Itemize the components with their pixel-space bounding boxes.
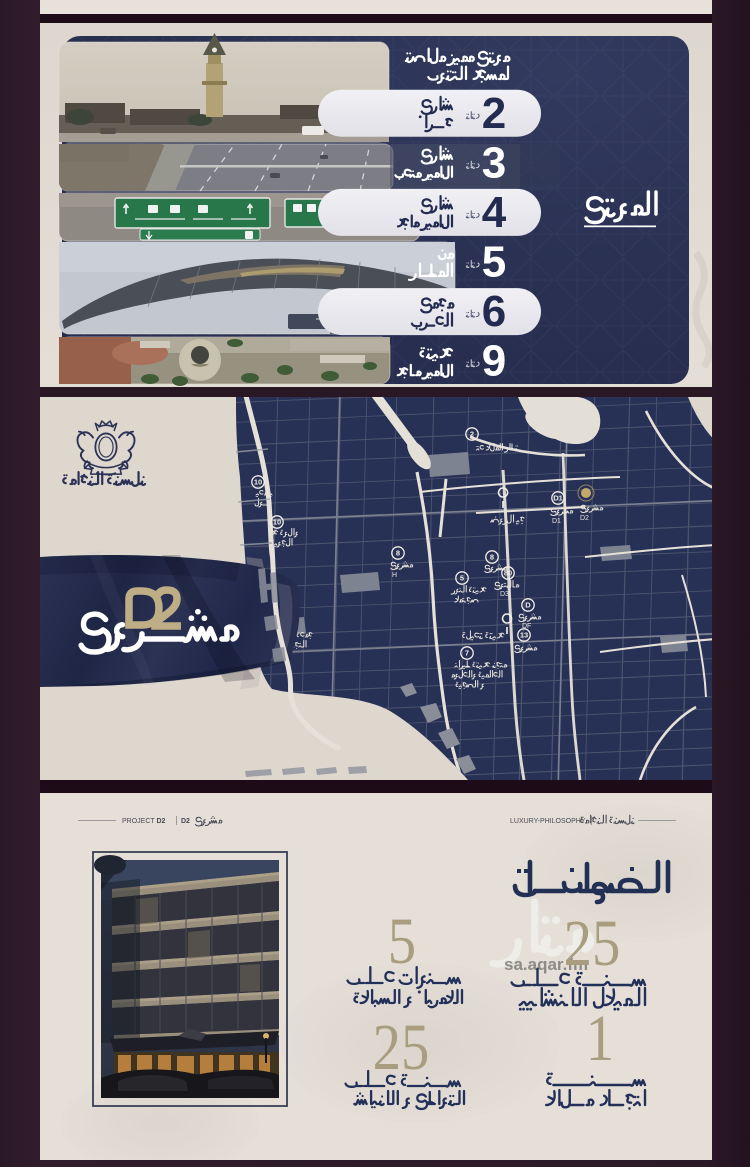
svg-text:4: 4 — [482, 188, 507, 237]
svg-text:6: 6 — [482, 287, 506, 336]
svg-text:13: 13 — [520, 631, 528, 640]
svg-text:5: 5 — [482, 238, 506, 287]
svg-text:5: 5 — [388, 905, 416, 978]
svg-text:LUXURY-PHILOSOPHY: LUXURY-PHILOSOPHY — [510, 818, 586, 825]
svg-text:8: 8 — [490, 553, 494, 562]
svg-text:10: 10 — [254, 478, 262, 487]
svg-text:D2: D2 — [181, 818, 190, 825]
svg-text:80: 80 — [504, 569, 512, 578]
svg-text:D2: D2 — [580, 515, 589, 522]
svg-text:2: 2 — [482, 89, 506, 138]
svg-text:25: 25 — [564, 907, 621, 980]
svg-text:D1: D1 — [553, 494, 563, 503]
svg-text:5: 5 — [460, 574, 464, 583]
svg-text:PROJECT D2: PROJECT D2 — [122, 818, 166, 825]
svg-text:10: 10 — [273, 518, 281, 527]
svg-text:D3: D3 — [500, 591, 509, 598]
svg-text:3: 3 — [482, 139, 506, 188]
svg-text:25: 25 — [373, 1011, 430, 1084]
svg-text:8: 8 — [396, 549, 400, 558]
svg-text:D: D — [525, 601, 531, 610]
svg-text:7: 7 — [465, 649, 469, 658]
svg-text:1: 1 — [586, 1002, 614, 1075]
svg-text:9: 9 — [482, 337, 506, 386]
svg-text:D1: D1 — [552, 518, 561, 525]
svg-text:2: 2 — [470, 430, 474, 439]
svg-text:H: H — [392, 572, 397, 579]
